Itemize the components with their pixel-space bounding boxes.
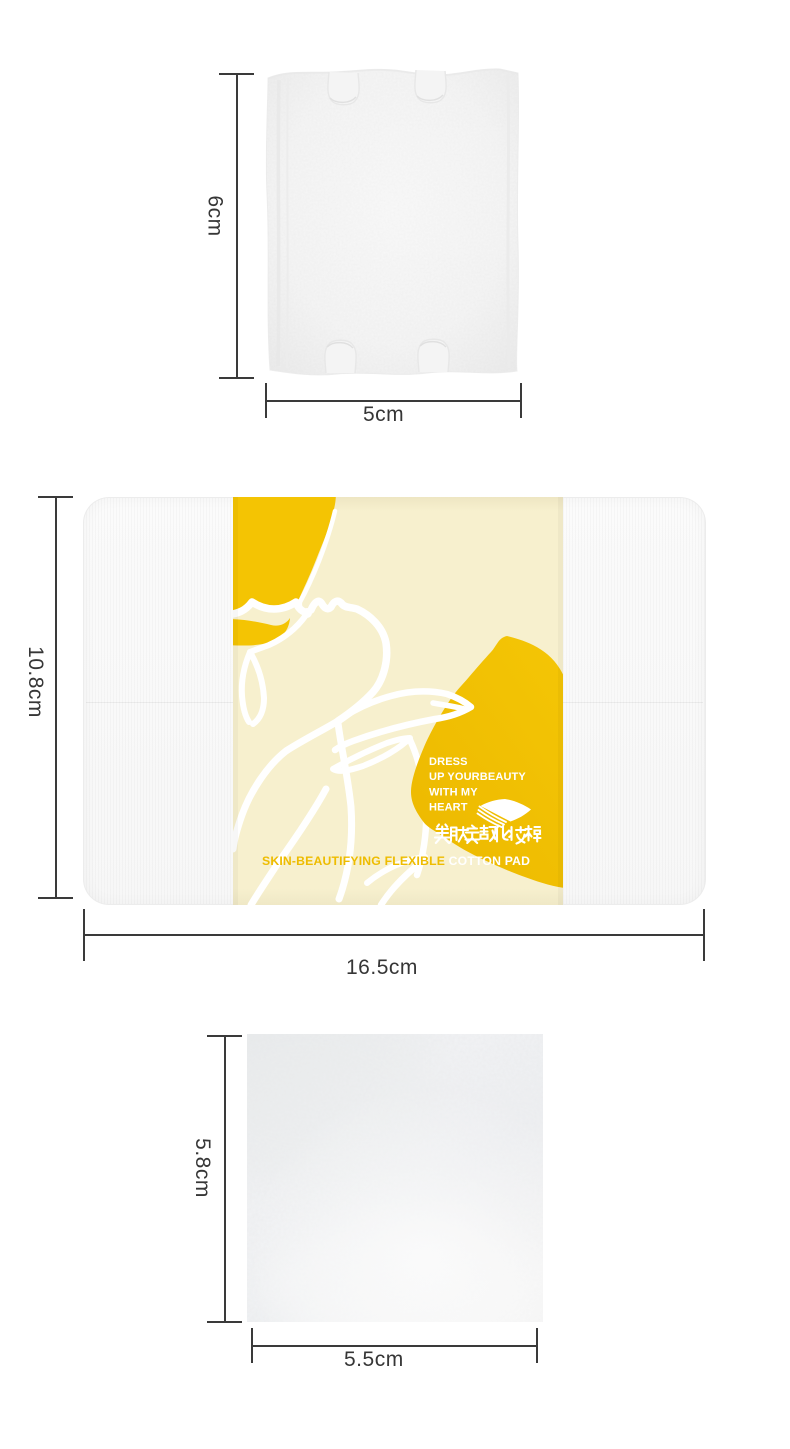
svg-text:DRESS: DRESS <box>429 756 468 768</box>
svg-text:WITH MY: WITH MY <box>429 786 478 798</box>
svg-text:UP YOURBEAUTY: UP YOURBEAUTY <box>429 771 526 783</box>
svg-text:SKIN-BEAUTIFYING FLEXIBLE COTT: SKIN-BEAUTIFYING FLEXIBLE COTTON PAD <box>262 854 530 868</box>
svg-text:HEART: HEART <box>429 802 468 814</box>
